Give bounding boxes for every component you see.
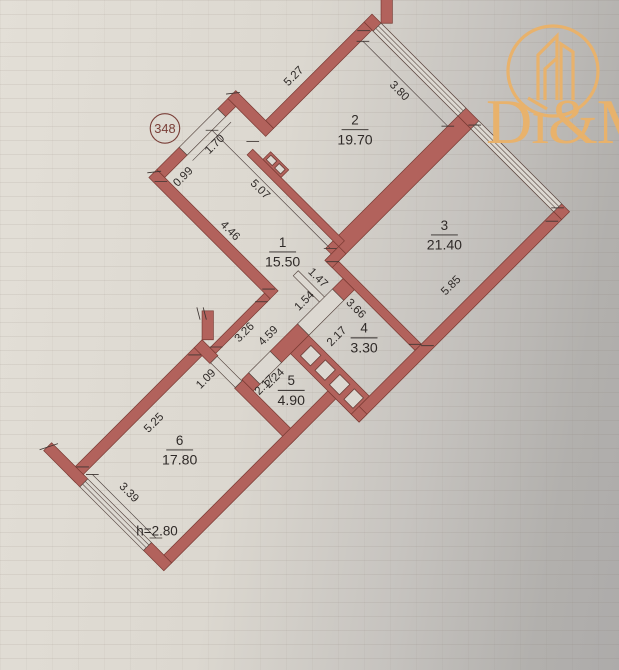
room3-number: 3 [441, 218, 448, 233]
room2-number: 2 [351, 113, 358, 128]
room-label-1: 1 15.50 [265, 235, 300, 270]
room1-number: 1 [279, 235, 286, 250]
height-note: h=2.80 [136, 524, 177, 539]
dim-room3-bottom-label: 3.66 [343, 297, 367, 321]
room2-area: 19.70 [337, 131, 372, 147]
dim-room3-side-label: 5.85 [439, 274, 463, 298]
room-label-3: 3 21.40 [427, 218, 462, 253]
dim-room6-door-label: 1.09 [194, 367, 218, 391]
room1-area: 15.50 [265, 254, 300, 270]
room5-number: 5 [287, 373, 294, 388]
room6-area: 17.80 [162, 452, 197, 468]
dim-room2-window-label: 3.80 [387, 79, 411, 103]
window-room6 [80, 479, 152, 551]
room4-area: 3.30 [350, 340, 378, 356]
room5-area: 4.90 [278, 392, 306, 408]
window-room2 [373, 23, 466, 116]
height-note-text: h=2.80 [136, 524, 177, 539]
room3-area: 21.40 [427, 237, 462, 253]
room-label-4: 4 3.30 [350, 321, 378, 356]
room-label-6: 6 17.80 [162, 433, 197, 468]
room-label-2: 2 19.70 [337, 113, 372, 148]
dim-hall-top-label: 5.07 [248, 177, 272, 201]
dim-entry-jog-label: 0.99 [171, 165, 195, 189]
room6-number: 6 [176, 433, 183, 448]
logo-wordmark: Dı&M [486, 86, 619, 157]
floor-plan-page: 3.80 5.27 5.07 4.46 1.70 0.99 3.26 5.85 … [0, 0, 619, 670]
dim-room4-depth-label: 2.17 [325, 325, 349, 349]
badge-number: 348 [154, 121, 175, 136]
dim-room6-window-label: 3.39 [116, 481, 140, 505]
room4-number: 4 [360, 321, 368, 336]
apartment-badge: 348 [150, 114, 179, 143]
logo: Dı&M [486, 26, 619, 157]
dim-room6-side-label: 5.25 [142, 411, 166, 435]
floor-plan-svg: 3.80 5.27 5.07 4.46 1.70 0.99 3.26 5.85 … [0, 0, 619, 670]
